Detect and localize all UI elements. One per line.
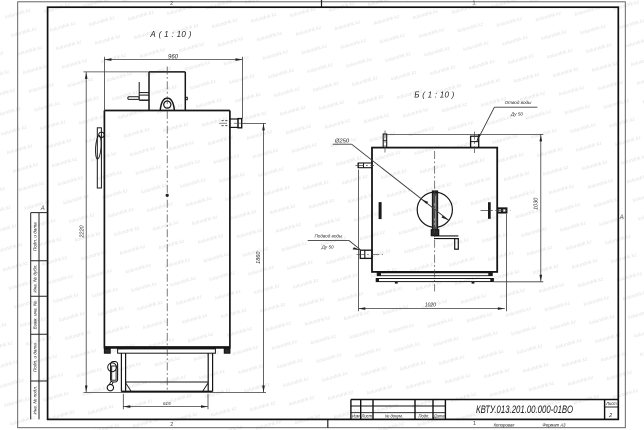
svg-text:Инв. № дубл.: Инв. № дубл. [33, 264, 38, 292]
svg-text:Лист: Лист [605, 401, 617, 406]
svg-text:1030: 1030 [534, 197, 540, 210]
svg-text:А: А [619, 215, 624, 221]
svg-text:Ду 50: Ду 50 [321, 245, 334, 250]
svg-text:А: А [40, 206, 45, 212]
svg-text:КВТУ.013.201.00.000-01ВО: КВТУ.013.201.00.000-01ВО [476, 404, 573, 416]
svg-text:А ( 1 : 10 ): А ( 1 : 10 ) [149, 30, 191, 39]
svg-text:Подп. и дата: Подп. и дата [33, 343, 38, 372]
svg-text:1020: 1020 [425, 303, 436, 309]
svg-text:Подвод воды: Подвод воды [314, 234, 342, 239]
svg-text:Б ( 1 : 10 ): Б ( 1 : 10 ) [414, 91, 454, 100]
svg-text:1860: 1860 [256, 251, 262, 264]
svg-text:Отвод воды: Отвод воды [505, 100, 532, 105]
svg-text:Изм: Изм [352, 414, 360, 419]
svg-text:Подп.: Подп. [419, 414, 430, 419]
svg-text:615: 615 [163, 401, 171, 406]
svg-text:Подп. и дата: Подп. и дата [33, 222, 38, 251]
svg-text:2: 2 [170, 1, 173, 7]
svg-text:Инв. № подл.: Инв. № подл. [33, 386, 38, 415]
svg-text:Лист: Лист [361, 414, 373, 419]
svg-text:Формат А3: Формат А3 [543, 423, 567, 428]
svg-text:1: 1 [472, 1, 475, 7]
svg-text:Взам. инв. №: Взам. инв. № [33, 301, 38, 329]
svg-text:Ø250: Ø250 [334, 139, 350, 145]
svg-text:2: 2 [170, 422, 173, 428]
svg-text:960: 960 [168, 54, 179, 60]
svg-text:№ докум.: № докум. [385, 414, 403, 419]
svg-text:2220: 2220 [79, 224, 85, 238]
svg-text:1: 1 [473, 421, 476, 427]
svg-text:2: 2 [608, 413, 612, 419]
svg-text:Копировал: Копировал [494, 423, 515, 428]
svg-text:Ду 50: Ду 50 [510, 111, 523, 116]
svg-text:Дата: Дата [433, 414, 446, 419]
